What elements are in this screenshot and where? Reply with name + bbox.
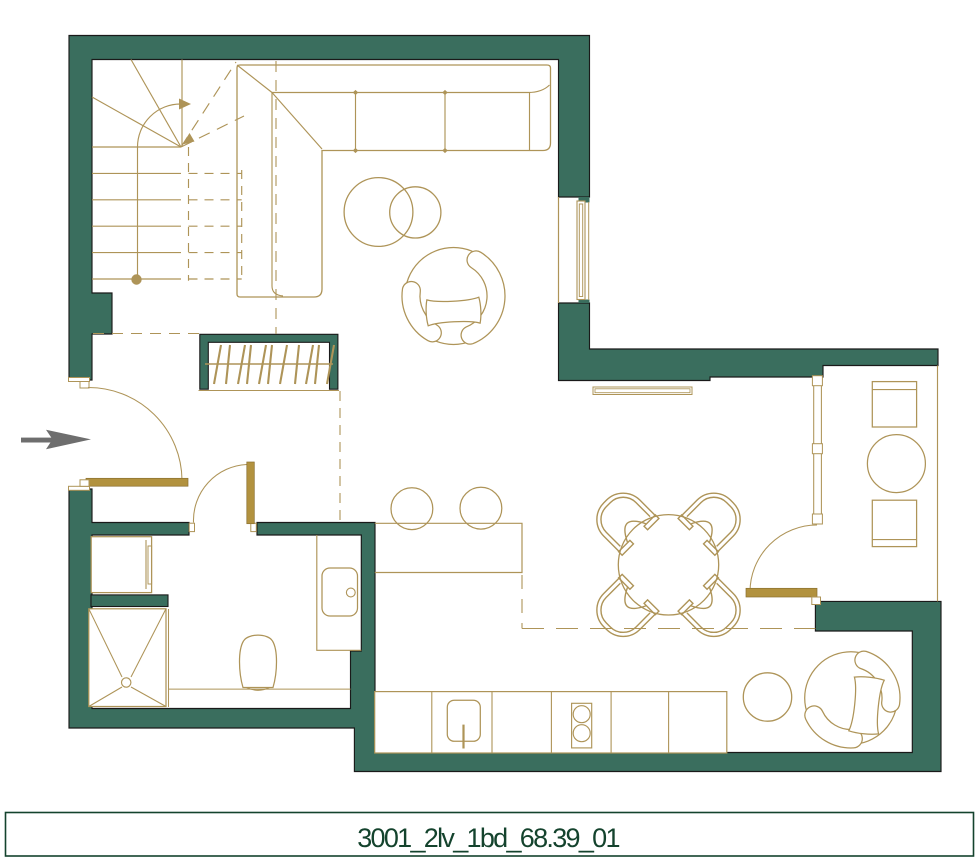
svg-text:3001_2lv_1bd_68.39_01: 3001_2lv_1bd_68.39_01: [357, 823, 619, 853]
